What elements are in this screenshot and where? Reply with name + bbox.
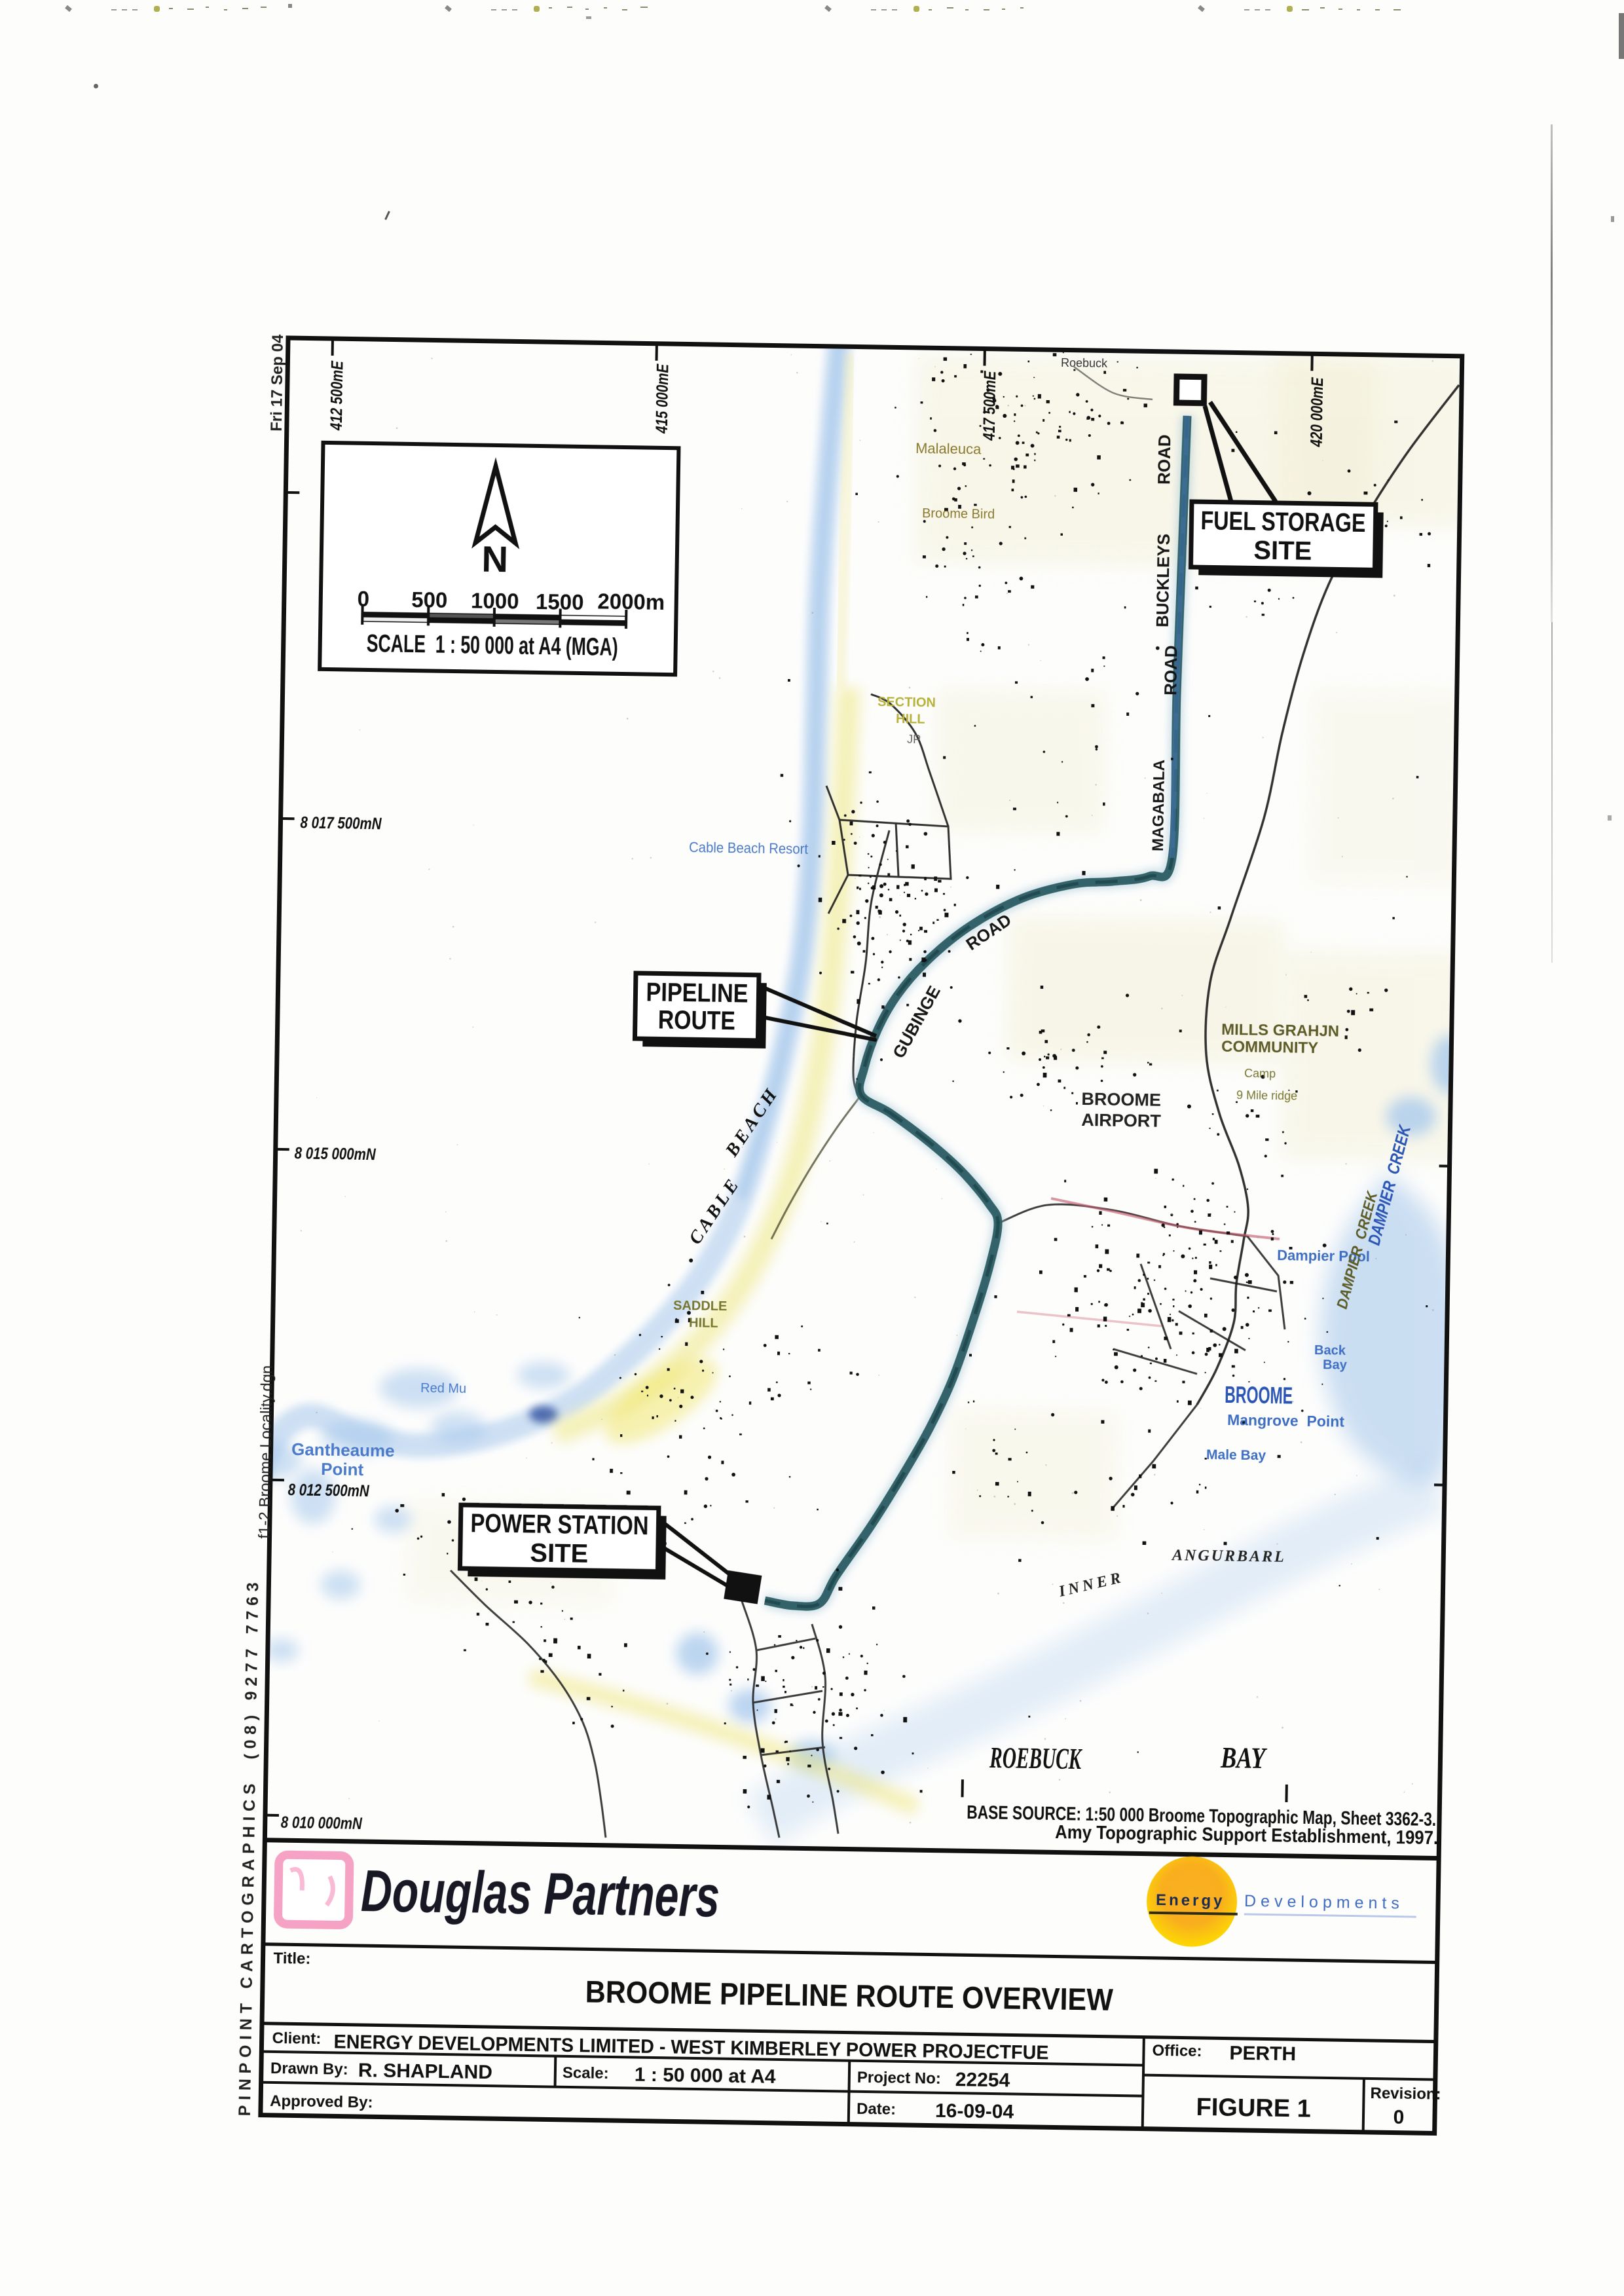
- svg-text:417 500mE: 417 500mE: [980, 370, 1000, 441]
- svg-text:ROUTE: ROUTE: [658, 1006, 736, 1036]
- svg-text:500: 500: [411, 587, 448, 612]
- svg-text:COMMUNITY: COMMUNITY: [1221, 1038, 1318, 1057]
- svg-text:f1-2 Broome Locality.dgn: f1-2 Broome Locality.dgn: [256, 1365, 276, 1538]
- svg-text:9 Mile ridge: 9 Mile ridge: [1236, 1088, 1297, 1102]
- svg-text:N: N: [481, 538, 508, 580]
- svg-text:420 000mE: 420 000mE: [1308, 377, 1327, 447]
- svg-text:FIGURE 1: FIGURE 1: [1196, 2094, 1311, 2123]
- svg-text:PIPELINE: PIPELINE: [646, 978, 748, 1008]
- svg-text:Drawn By:: Drawn By:: [270, 2060, 348, 2079]
- svg-text:16-09-04: 16-09-04: [935, 2100, 1014, 2123]
- svg-text:Project No:: Project No:: [857, 2069, 941, 2088]
- svg-text:SCALE 1 : 50 000 at A4 (MGA): SCALE 1 : 50 000 at A4 (MGA): [366, 630, 618, 661]
- svg-text:MILLS GRAHJN: MILLS GRAHJN: [1221, 1021, 1339, 1041]
- svg-text:Client:: Client:: [272, 2029, 321, 2048]
- svg-text:Roebuck: Roebuck: [1061, 356, 1108, 370]
- svg-text:ROEBUCK: ROEBUCK: [989, 1741, 1083, 1775]
- svg-text:Scale:: Scale:: [563, 2064, 609, 2083]
- svg-text:POWER STATION: POWER STATION: [470, 1509, 649, 1540]
- svg-text:HILL: HILL: [689, 1316, 718, 1331]
- svg-text:ROAD: ROAD: [1160, 645, 1181, 695]
- svg-text:Red Mu: Red Mu: [420, 1381, 466, 1396]
- svg-text:8 012 500mN: 8 012 500mN: [287, 1481, 369, 1500]
- svg-text:Broome Bird: Broome Bird: [922, 506, 995, 522]
- svg-text:Point: Point: [321, 1459, 364, 1479]
- svg-text:SITE: SITE: [530, 1539, 589, 1568]
- svg-text:ROAD: ROAD: [1154, 434, 1174, 485]
- svg-text:412 500mE: 412 500mE: [327, 360, 347, 431]
- svg-text:8 015 000mN: 8 015 000mN: [294, 1144, 376, 1164]
- svg-text:PERTH: PERTH: [1229, 2043, 1296, 2065]
- svg-text:Douglas Partners: Douglas Partners: [360, 1859, 720, 1929]
- svg-text:PINPOINT CARTOGRAPHICS (08) 9: PINPOINT CARTOGRAPHICS (08) 9277 7763: [236, 1582, 263, 2116]
- svg-text:1000: 1000: [471, 588, 519, 613]
- svg-text:Bay: Bay: [1323, 1358, 1348, 1373]
- svg-text:Back: Back: [1314, 1343, 1346, 1358]
- svg-text:Approved By:: Approved By:: [270, 2092, 373, 2111]
- svg-text:8 010 000mN: 8 010 000mN: [281, 1813, 363, 1833]
- svg-text:Male Bay: Male Bay: [1206, 1447, 1266, 1463]
- svg-text:ANGURBARL: ANGURBARL: [1171, 1547, 1286, 1566]
- svg-text:2000m: 2000m: [597, 589, 665, 614]
- svg-text:1500: 1500: [536, 589, 584, 614]
- svg-text:Malaleuca: Malaleuca: [915, 440, 982, 458]
- svg-text:JP: JP: [907, 733, 921, 746]
- svg-text:Office:: Office:: [1152, 2042, 1202, 2060]
- svg-text:Mangrove Point: Mangrove Point: [1227, 1411, 1345, 1430]
- svg-text:SITE: SITE: [1253, 536, 1312, 565]
- svg-text:INNER: INNER: [1056, 1569, 1125, 1601]
- svg-text:Cable Beach Resort: Cable Beach Resort: [689, 839, 808, 857]
- svg-text:FUEL STORAGE: FUEL STORAGE: [1200, 506, 1366, 538]
- svg-text:Developments: Developments: [1244, 1892, 1404, 1913]
- svg-text:BAY: BAY: [1220, 1741, 1268, 1775]
- svg-text:8 017 500mN: 8 017 500mN: [300, 813, 382, 833]
- svg-text:Camp: Camp: [1244, 1067, 1276, 1081]
- svg-text:MAGABALA: MAGABALA: [1149, 760, 1168, 851]
- svg-text:SADDLE: SADDLE: [673, 1299, 728, 1314]
- svg-text:Fri 17 Sep 04: Fri 17 Sep 04: [268, 334, 287, 432]
- svg-text:HILL: HILL: [896, 712, 925, 727]
- svg-text:415 000mE: 415 000mE: [653, 363, 673, 434]
- svg-text:Title:: Title:: [273, 1950, 310, 1968]
- svg-text:BUCKLEYS: BUCKLEYS: [1153, 534, 1173, 627]
- svg-text:Date:: Date:: [857, 2100, 896, 2119]
- svg-text:Revision:: Revision:: [1370, 2084, 1441, 2103]
- svg-text:R. SHAPLAND: R. SHAPLAND: [358, 2060, 493, 2083]
- svg-text:Energy: Energy: [1156, 1891, 1225, 1910]
- svg-text:BROOME: BROOME: [1081, 1089, 1161, 1110]
- svg-text:AIRPORT: AIRPORT: [1081, 1110, 1161, 1131]
- svg-text:0: 0: [1393, 2107, 1404, 2128]
- svg-text:22254: 22254: [955, 2069, 1010, 2091]
- svg-text:0: 0: [357, 587, 369, 611]
- svg-text:SECTION: SECTION: [877, 695, 936, 710]
- svg-text:Gantheaume: Gantheaume: [291, 1439, 395, 1460]
- svg-text:1 : 50 000 at A4: 1 : 50 000 at A4: [635, 2064, 776, 2088]
- svg-text:BROOME: BROOME: [1225, 1381, 1293, 1409]
- svg-text:BROOME PIPELINE ROUTE OVERVIEW: BROOME PIPELINE ROUTE OVERVIEW: [585, 1974, 1113, 2017]
